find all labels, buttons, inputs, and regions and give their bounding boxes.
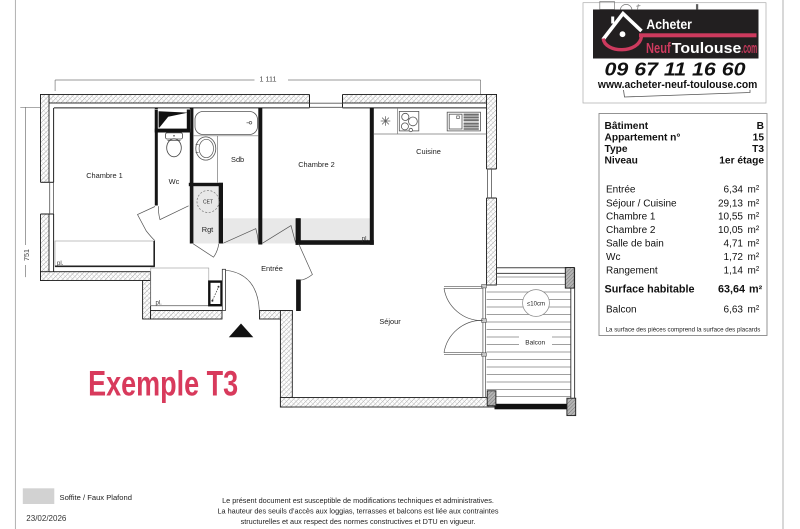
svg-text:Acheter: Acheter [646,16,692,32]
svg-text:Wc: Wc [169,177,180,186]
svg-text:Balcon: Balcon [606,305,637,316]
svg-text:m²: m² [748,239,760,250]
svg-text:Entrée: Entrée [606,185,636,196]
svg-text:Rangement: Rangement [606,266,658,277]
svg-text:La hauteur des seuils d’accès: La hauteur des seuils d’accès aux loggia… [217,506,498,515]
svg-text:pl.: pl. [57,261,64,267]
svg-text:63,64: 63,64 [718,284,745,296]
svg-text:23/02/2026: 23/02/2026 [26,514,67,523]
svg-text:Toulouse: Toulouse [672,41,742,57]
svg-text:CET: CET [203,199,213,205]
svg-text:Chambre 2: Chambre 2 [298,160,335,169]
svg-text:1,72: 1,72 [724,252,744,263]
svg-text:6,34: 6,34 [724,185,744,196]
svg-text:1er étage: 1er étage [719,155,764,166]
svg-text:structurelles et aux respect d: structurelles et aux respect des normes … [241,517,476,526]
svg-text:1,14: 1,14 [724,266,744,277]
svg-text:T3: T3 [752,144,764,155]
svg-text:Soffite / Faux Plafond: Soffite / Faux Plafond [60,493,132,502]
svg-text:Niveau: Niveau [605,155,638,166]
svg-text:m²: m² [748,305,760,316]
svg-text:Chambre 1: Chambre 1 [86,171,123,180]
svg-text:.com: .com [741,41,757,57]
svg-text:m²: m² [748,252,760,263]
svg-text:m²: m² [748,198,760,209]
svg-text:pl.: pl. [156,301,163,307]
svg-text:Chambre 1: Chambre 1 [606,212,656,223]
svg-text:La surface des pièces comprend: La surface des pièces comprend la surfac… [606,327,761,334]
svg-text:Séjour: Séjour [379,317,401,326]
svg-text:15: 15 [753,132,765,143]
svg-text:Rgt: Rgt [202,225,214,234]
svg-text:Bâtiment: Bâtiment [605,121,649,132]
svg-text:m²: m² [749,284,763,296]
svg-text:B: B [757,121,764,132]
svg-text:Le présent document est suscep: Le présent document est susceptible de m… [222,496,494,505]
svg-text:6,63: 6,63 [724,305,744,316]
svg-text:Neuf: Neuf [646,41,671,57]
svg-text:29,13: 29,13 [718,198,743,209]
svg-text:Sdb: Sdb [231,155,244,164]
svg-text:Balcon: Balcon [525,339,545,346]
svg-text:pl.: pl. [362,236,369,242]
svg-text:09 67 11 16 60: 09 67 11 16 60 [605,60,746,80]
svg-text:751: 751 [22,249,31,261]
svg-text:Cuisine: Cuisine [416,147,441,156]
svg-text:Surface habitable: Surface habitable [605,284,695,296]
svg-text:Exemple T3: Exemple T3 [88,364,238,403]
svg-text:m²: m² [748,266,760,277]
svg-text:Entrée: Entrée [261,264,283,273]
svg-text:Chambre 2: Chambre 2 [606,225,656,236]
svg-text:10,05: 10,05 [718,225,743,236]
svg-text:Type: Type [605,144,628,155]
svg-text:m²: m² [748,185,760,196]
svg-text:www.acheter-neuf-toulouse.com: www.acheter-neuf-toulouse.com [597,79,757,91]
svg-text:m²: m² [748,212,760,223]
svg-text:4,71: 4,71 [724,239,744,250]
svg-text:≤10cm: ≤10cm [527,301,545,307]
svg-text:m²: m² [748,225,760,236]
svg-text:10,55: 10,55 [718,212,743,223]
svg-text:Appartement n°: Appartement n° [605,132,681,143]
svg-text:1 111: 1 111 [260,74,277,83]
svg-text:Salle de bain: Salle de bain [606,239,664,250]
svg-text:Wc: Wc [606,252,620,263]
svg-text:Séjour / Cuisine: Séjour / Cuisine [606,198,677,209]
